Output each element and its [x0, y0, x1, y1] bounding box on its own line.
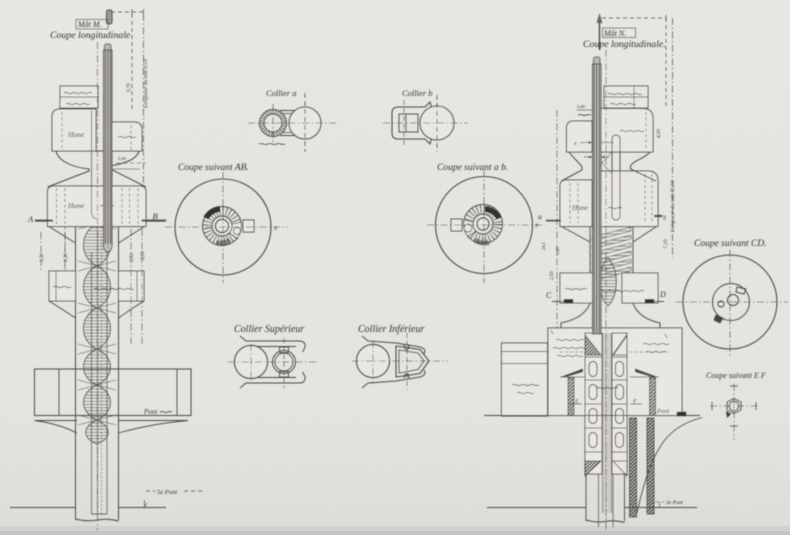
svg-text:A: A [27, 214, 34, 224]
svg-text:Coupe suivant AB.: Coupe suivant AB. [178, 163, 249, 173]
svg-text:Mât M.: Mât M. [77, 20, 102, 29]
svg-text:Collier a: Collier a [266, 88, 296, 98]
svg-text:2,50: 2,50 [550, 271, 555, 280]
svg-text:5,70: 5,70 [127, 83, 132, 92]
svg-text:4,50: 4,50 [657, 129, 662, 138]
svg-text:Pont: Pont [143, 408, 158, 416]
svg-text:B: B [153, 211, 158, 221]
svg-text:5e Pont: 5e Pont [157, 489, 177, 496]
svg-text:D: D [659, 290, 666, 299]
svg-text:2,50: 2,50 [40, 253, 45, 262]
svg-text:Coupe suivant CD.: Coupe suivant CD. [694, 239, 767, 249]
svg-text:2,80: 2,80 [141, 251, 146, 260]
svg-text:90: 90 [662, 215, 667, 220]
svg-text:Hune: Hune [67, 130, 85, 139]
svg-text:Hune: Hune [571, 203, 589, 212]
svg-text:Coupe longitudinale: Coupe longitudinale [50, 30, 131, 41]
svg-text:7,10: 7,10 [663, 239, 669, 249]
svg-text:x: x [573, 140, 577, 147]
svg-text:Collier Inférieur: Collier Inférieur [358, 324, 424, 335]
svg-text:Longueur du mât 9,50: Longueur du mât 9,50 [143, 59, 149, 109]
svg-text:1,20: 1,20 [64, 253, 69, 262]
svg-text:C: C [546, 291, 552, 300]
svg-text:Coupe longitudinale.: Coupe longitudinale. [583, 39, 666, 50]
svg-text:Coupe suivant a b.: Coupe suivant a b. [437, 163, 508, 173]
svg-text:Pont: Pont [656, 408, 669, 415]
svg-text:Longueur du mât 45,50: Longueur du mât 45,50 [669, 180, 676, 233]
svg-text:Coupe suivant E F: Coupe suivant E F [706, 371, 766, 380]
svg-text:2,50: 2,50 [130, 253, 135, 262]
svg-text:Collier Supérieur: Collier Supérieur [234, 324, 304, 335]
svg-text:3e Pont: 3e Pont [665, 500, 683, 506]
svg-text:Hune: Hune [67, 201, 85, 210]
svg-text:a: a [538, 212, 542, 221]
svg-text:Mât N.: Mât N. [603, 29, 626, 38]
svg-text:Collier b: Collier b [402, 88, 432, 98]
svg-text:E: E [574, 398, 579, 405]
